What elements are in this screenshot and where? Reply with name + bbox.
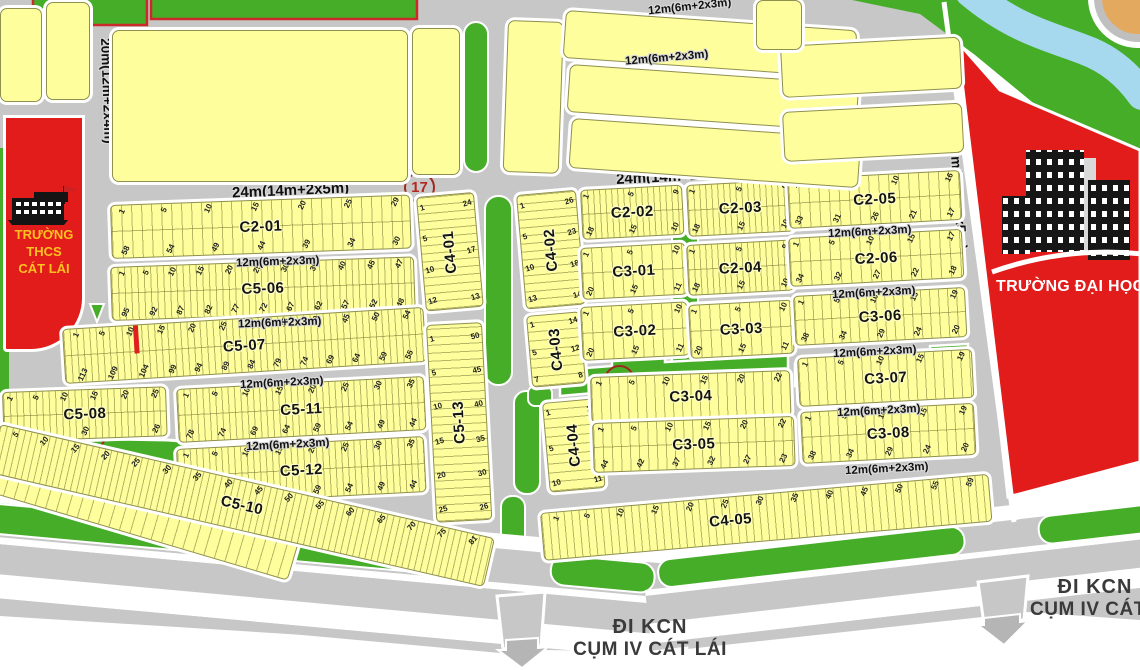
parcel-number: 10 [203,202,216,214]
parcel-number: 99 [167,363,180,375]
parcel-number: 10 [672,303,685,315]
parcel-numbers: 1510152025 [8,388,161,403]
parcel-number: 5 [141,269,152,277]
school-thcs-block: TRƯỜNG THCS CÁT LÁI [3,115,85,352]
parcel-number: 58 [120,244,133,256]
parcel-number: 30 [79,425,92,437]
parcel-number: 22 [776,417,789,429]
block-label: C2-01 [239,218,282,236]
parcel-number: 15 [735,279,748,291]
parcel-number: 20 [959,441,972,453]
parcel-number: 59 [964,476,977,488]
parcel-number: 30 [391,235,404,247]
parcel-number: 82 [202,303,215,315]
parcel-number: 20 [186,322,199,334]
parcel-number: 15 [195,265,208,277]
parcel-number: 1 [545,405,559,417]
parcel-number: 10 [614,507,627,519]
parcel-number: 87 [175,304,188,316]
parcel-number: 24 [462,197,473,208]
parcel-number: 23 [566,226,577,237]
parcel-number: 38 [799,331,812,343]
parcel-number: 9 [671,188,682,196]
parcel-number: 18 [690,281,703,293]
parcel-number: 89 [219,360,232,372]
parcel-number: 5 [31,394,42,402]
parcel-number: 5 [625,248,636,256]
parcel-number: 25 [438,503,452,515]
block-c5-13: C5-131510152025504540353026 [426,322,492,523]
parcel-number: 34 [345,236,358,248]
parcel-number: 45 [859,486,872,498]
parcel-number: 1 [803,414,814,422]
parcel-number: 26 [869,210,882,222]
parcel-number: 1 [419,200,433,212]
parcel-numbers: 159 [690,182,788,197]
parcel-number: 40 [336,260,349,272]
parcel-number: 11 [592,474,603,485]
parcel-number: 20 [436,469,450,481]
parcel-number: 55 [314,498,327,511]
parcel-numbers: 159 [584,187,678,202]
block-c2-01: C2-0115101520252958544944393430 [110,195,412,259]
parcel-number: 23 [777,452,790,464]
parcel-number: 25 [339,441,352,453]
parcel-number: 25 [130,456,143,469]
block-label: C3-04 [669,387,712,405]
parcel-number: 74 [217,426,230,438]
parcel-number: 109 [106,365,121,381]
parcel-number: 45 [340,313,353,325]
parcel-number: 5 [582,512,593,520]
parcel-number: 50 [470,330,481,341]
parcel-number: 20 [296,199,309,211]
parcel-number: 1 [519,198,533,210]
block-label: C3-03 [719,320,763,339]
parcel-number: 29 [389,196,402,208]
block-label: C2-06 [854,248,898,267]
parcel-number: 24 [921,443,934,455]
university-label: TRƯỜNG ĐẠI HỌC [996,278,1140,296]
parcel-number: 40 [473,399,484,410]
block-label: C5-06 [241,279,284,297]
parcel-number: 5 [531,345,545,357]
parcel-number: 33 [793,214,806,226]
parcel-number: 20 [584,285,597,297]
parcel-number: 77 [230,302,243,314]
parcel-numbers: 157 [529,318,547,383]
parcel-number: 50 [894,482,907,494]
parcel-number: 35 [475,433,486,444]
parcel-number: 5 [734,245,745,253]
parcel-number: 20 [684,501,697,513]
parcel-number: 18 [947,264,960,276]
block-label: C2-04 [718,258,762,277]
parcel-number: 1 [581,251,592,259]
parcel-number: 74 [298,355,311,367]
parcel-number: 30 [160,463,173,476]
parcel-number: 15 [698,374,711,386]
parcel-number: 1 [581,310,592,318]
parcel-number: 31 [831,212,844,224]
parcel-number: 20 [99,449,112,462]
parcel-number: 54 [401,309,414,321]
parcel-number: 25 [149,387,162,399]
parcel-number: 75 [436,527,449,540]
parcel-number: 69 [325,354,338,366]
parcel-numbers: 181510 [692,278,790,293]
cadastral-map: TRƯỜNG THCS CÁT LÁI TRƯỜNG ĐẠI HỌC 20m(1… [0,0,1140,670]
block-label: C4-05 [708,510,752,531]
parcel-number: 64 [351,352,364,364]
parcel-number: 20 [735,373,748,385]
parcel-numbers: 201511 [586,282,683,297]
parcel-number: 35 [789,492,802,504]
parcel-number: 15 [630,344,643,356]
parcel-number: 49 [210,241,223,253]
parcel-number: 5 [629,424,640,432]
exit-sign-east: ĐI KCN CỤM IV CÁT LÁI [1030,576,1140,621]
parcel-number: 7 [533,373,547,385]
parcel-number: 25 [343,197,356,209]
parcel-number: 24 [912,325,925,337]
block-label: C3-07 [864,368,908,387]
parcel-number: 42 [634,457,647,469]
parcel-number: 5 [431,366,445,378]
block-label: C2-03 [718,199,762,218]
parcel-number: 44 [255,240,268,252]
parcel-number: 1 [596,425,607,433]
block-c2-04: C2-04159181510 [686,239,795,295]
parcel-number: 27 [742,453,755,465]
parcel-number: 11 [780,340,793,352]
parcel-number: 30 [372,439,385,451]
parcel-number: 79 [272,357,285,369]
parcel-number: 12 [427,295,441,307]
block-label: C5-13 [450,401,469,445]
parcel-number: 1 [796,298,807,306]
block-label: C4-01 [440,230,461,274]
parcel-number: 15 [434,435,448,447]
parcel-number: 95 [120,306,133,318]
parcel-number: 10 [524,261,538,273]
parcel-number: 19 [955,350,968,362]
parcel-number: 26 [479,501,490,512]
parcel-number: 15 [735,220,748,232]
parcel-number: 1 [529,317,543,329]
parcel-number: 15 [736,342,749,354]
parcel-number: 40 [222,477,235,490]
parcel-number: 1 [429,332,443,344]
parcel-number: 5 [422,232,436,244]
parcel-number: 1 [71,331,82,339]
block-c4-01: C4-01151012241713 [416,192,484,312]
parcel-number: 45 [365,259,378,271]
parcel-number: 17 [945,230,958,242]
parcel-number: 20 [739,418,752,430]
parcel-number: 20 [119,389,132,401]
parcel-number: 59 [377,350,390,362]
parcel-number: 54 [343,420,356,432]
block-label: C2-02 [610,203,654,222]
block-c2-02: C2-02159181510 [580,185,684,240]
parcel-number: 60 [344,506,357,519]
parcel-number: 10 [551,477,565,489]
parcel-number: 5 [97,329,108,337]
parcel-number: 18 [690,222,703,234]
block-unlabeled [0,8,42,102]
parcel-number: 1 [181,451,192,459]
parcel-number: 1 [800,360,811,368]
parcel-number: 21 [907,208,920,220]
parcel-number: 10 [777,301,790,313]
parcel-number: 20 [950,323,963,335]
parcel-number: 72 [257,301,270,313]
parcel-number: 13 [527,293,541,305]
parcel-number: 57 [340,299,353,311]
parcel-number: 22 [772,371,785,383]
parcel-number: 1 [181,391,192,399]
parcel-number: 40 [824,489,837,501]
parcel-number: 30 [477,467,488,478]
parcel-number: 19 [948,288,961,300]
parcel-number: 1 [581,193,592,201]
parcel-number: 15 [627,223,640,235]
parcel-number: 10 [890,174,903,186]
parcel-number: 34 [794,272,807,284]
parcel-number: 65 [375,513,388,526]
parcel-number: 15 [701,420,714,432]
parcel-number: 18 [584,225,597,237]
block-label: C5-07 [222,336,266,356]
block-label: C3-06 [858,307,902,326]
block-c3-01: C3-011510201511 [580,243,688,300]
parcel-numbers: 1510 [584,304,683,319]
parcel-number: 1 [687,248,698,256]
parcel-number: 10 [38,435,51,448]
parcel-number: 35 [405,378,418,390]
parcel-number: 69 [248,425,261,437]
parcel-numbers: 1510 [584,245,681,260]
school-building-icon [6,178,82,230]
parcel-number: 1 [687,188,698,196]
parcel-numbers: 1510 [545,406,564,488]
parcel-number: 64 [280,423,293,435]
parcel-number: 44 [407,416,420,428]
parcel-number: 25 [719,498,732,510]
block-label: C4-02 [541,228,562,272]
parcel-number: 55 [403,349,416,361]
parcel-number: 34 [837,329,850,341]
parcel-number: 15 [649,504,662,516]
parcel-number: 49 [375,418,388,430]
exit-sign-south: ĐI KCN CỤM IV CÁT LÁI [550,616,750,661]
parcel-numbers: 201511 [586,343,685,358]
green-lot-outlined [151,0,417,19]
parcel-number: 32 [832,270,845,282]
block-label: C4-03 [546,327,567,371]
parcel-number: 32 [706,455,719,467]
parcel-number: 8 [577,370,584,380]
block-label: C5-08 [63,405,106,423]
parcel-number: 5 [626,190,637,198]
parcel-numbers: 159 [690,242,788,257]
parcel-number: 1 [552,515,563,523]
parcel-number: 92 [147,305,160,317]
parcel-number: 5 [626,307,637,315]
parcel-number: 25 [339,381,352,393]
block-label: C4-04 [563,423,584,467]
parcel-number: 11 [673,281,686,293]
block-unlabeled [503,20,564,174]
school-thcs-label: TRƯỜNG THCS CÁT LÁI [6,226,82,277]
block-c4-02: C4-0215101326231814 [516,190,586,310]
parcel-number: 54 [343,482,356,494]
parcel-number: 20 [223,264,236,276]
parcel-numbers: 201511 [694,341,790,356]
parcel-number: 18 [569,258,580,269]
parcel-number: 1 [117,207,128,215]
parcel-number: 15 [629,283,642,295]
block-c3-02: C3-021510201511 [580,301,690,361]
parcel-numbers: 181510 [692,219,790,234]
parcel-number: 1 [117,269,128,277]
block-unlabeled [112,30,408,182]
parcel-number: 5 [210,450,221,458]
parcel-number: 10 [663,421,676,433]
parcel-number: 45 [252,484,265,497]
parcel-number: 5 [11,430,21,440]
parcel-number: 5 [734,185,745,193]
parcel-number: 70 [405,520,418,533]
parcel-number: 15 [89,390,102,402]
parcel-number: 55 [929,479,942,491]
block-label: C5-11 [280,400,323,419]
parcel-number: 49 [375,480,388,492]
parcel-number: 59 [312,421,325,433]
parcel-number: 84 [246,358,259,370]
block-c3-03: C3-031510201511 [688,300,795,359]
block-label: C2-05 [853,190,897,209]
parcel-number: 38 [806,449,819,461]
block-c3-07: C3-0715101519 [797,349,974,407]
block-label: C3-08 [866,424,910,443]
median-green [485,196,512,385]
parcel-number: 62 [312,300,325,312]
parcel-number: 10 [670,244,683,256]
parcel-number: 113 [76,367,90,383]
parcel-number: 44 [407,478,420,490]
parcel-number: 34 [845,447,858,459]
parcel-number: 17 [945,206,958,218]
parcel-number: 16 [943,171,956,183]
parcel-number: 78 [185,428,198,440]
parcel-number: 35 [405,438,418,450]
parcel-number: 30 [372,379,385,391]
parcel-number: 12 [570,342,581,353]
block-label: C3-05 [672,435,715,453]
parcel-number: 35 [191,470,204,483]
block-c3-05: C3-051510152022444237322723 [592,416,796,473]
parcel-number: 44 [598,458,611,470]
block-unlabeled [756,0,802,50]
parcel-number: 29 [883,445,896,457]
block-c2-03: C2-03159181510 [686,179,795,236]
block-unlabeled [46,2,90,100]
parcel-number: 45 [472,364,483,375]
median-green [464,22,488,172]
parcel-number: 10 [166,266,179,278]
parcel-number: 47 [393,258,406,270]
parcel-number: 94 [193,362,206,374]
parcel-number: 81 [467,534,480,547]
parcel-numbers: 181510 [586,222,680,237]
parcel-number: 1 [689,308,700,316]
parcel-number: 15 [249,201,262,213]
block-label: C5-12 [279,461,323,480]
block-unlabeled [780,37,962,98]
parcel-number: 50 [370,311,383,323]
parcel-number: 10 [669,221,682,233]
parcel-number: 5 [159,206,170,214]
block-label: C3-01 [612,262,656,281]
parcel-number: 1 [791,240,802,248]
parcel-number: 26 [151,422,164,434]
parcel-number: 30 [754,495,767,507]
parcel-number: 26 [564,195,575,206]
parcel-number: 10 [58,391,71,403]
block-unlabeled [782,103,964,162]
parcel-number: 59 [312,483,325,495]
parcel-number: 5 [210,390,221,398]
parcel-number: 50 [283,491,296,504]
parcel-number: 5 [522,230,536,242]
parcel-number: 13 [470,292,481,303]
parcel-number: 104 [137,363,152,379]
parcel-number: 10 [661,375,674,387]
parcel-number: 67 [285,301,298,313]
parcel-number: 10 [432,400,446,412]
parcel-number: 10 [424,263,438,275]
parcel-number: 14 [568,315,579,326]
block-unlabeled [412,28,460,175]
parcel-number: 37 [670,456,683,468]
parcel-number: 27 [871,268,884,280]
parcel-number: 19 [957,404,970,416]
parcel-number: 25 [217,320,230,332]
parcel-number: 5 [733,305,744,313]
parcel-number: 15 [155,324,168,336]
parcel-number: 5 [627,378,638,386]
parcel-number: 17 [466,244,477,255]
parcel-number: 54 [165,243,178,255]
parcel-number: 20 [692,344,705,356]
block-label: C3-02 [613,322,657,341]
parcel-number: 20 [585,346,598,358]
parcel-number: 22 [909,266,922,278]
down-arrow-icon [978,614,1028,645]
block-c3-04: C3-041510152022 [590,370,791,423]
parcel-number: 11 [675,342,688,354]
parcel-number: 1 [5,395,16,403]
parcel-number: 29 [875,327,888,339]
parcel-numbers: 1510 [692,302,788,317]
parcel-number: 1 [594,379,605,387]
parcel-number: 39 [300,238,313,250]
parcel-number: 5 [548,441,562,453]
parcel-number: 52 [367,298,380,310]
parcel-number: 15 [69,442,82,455]
